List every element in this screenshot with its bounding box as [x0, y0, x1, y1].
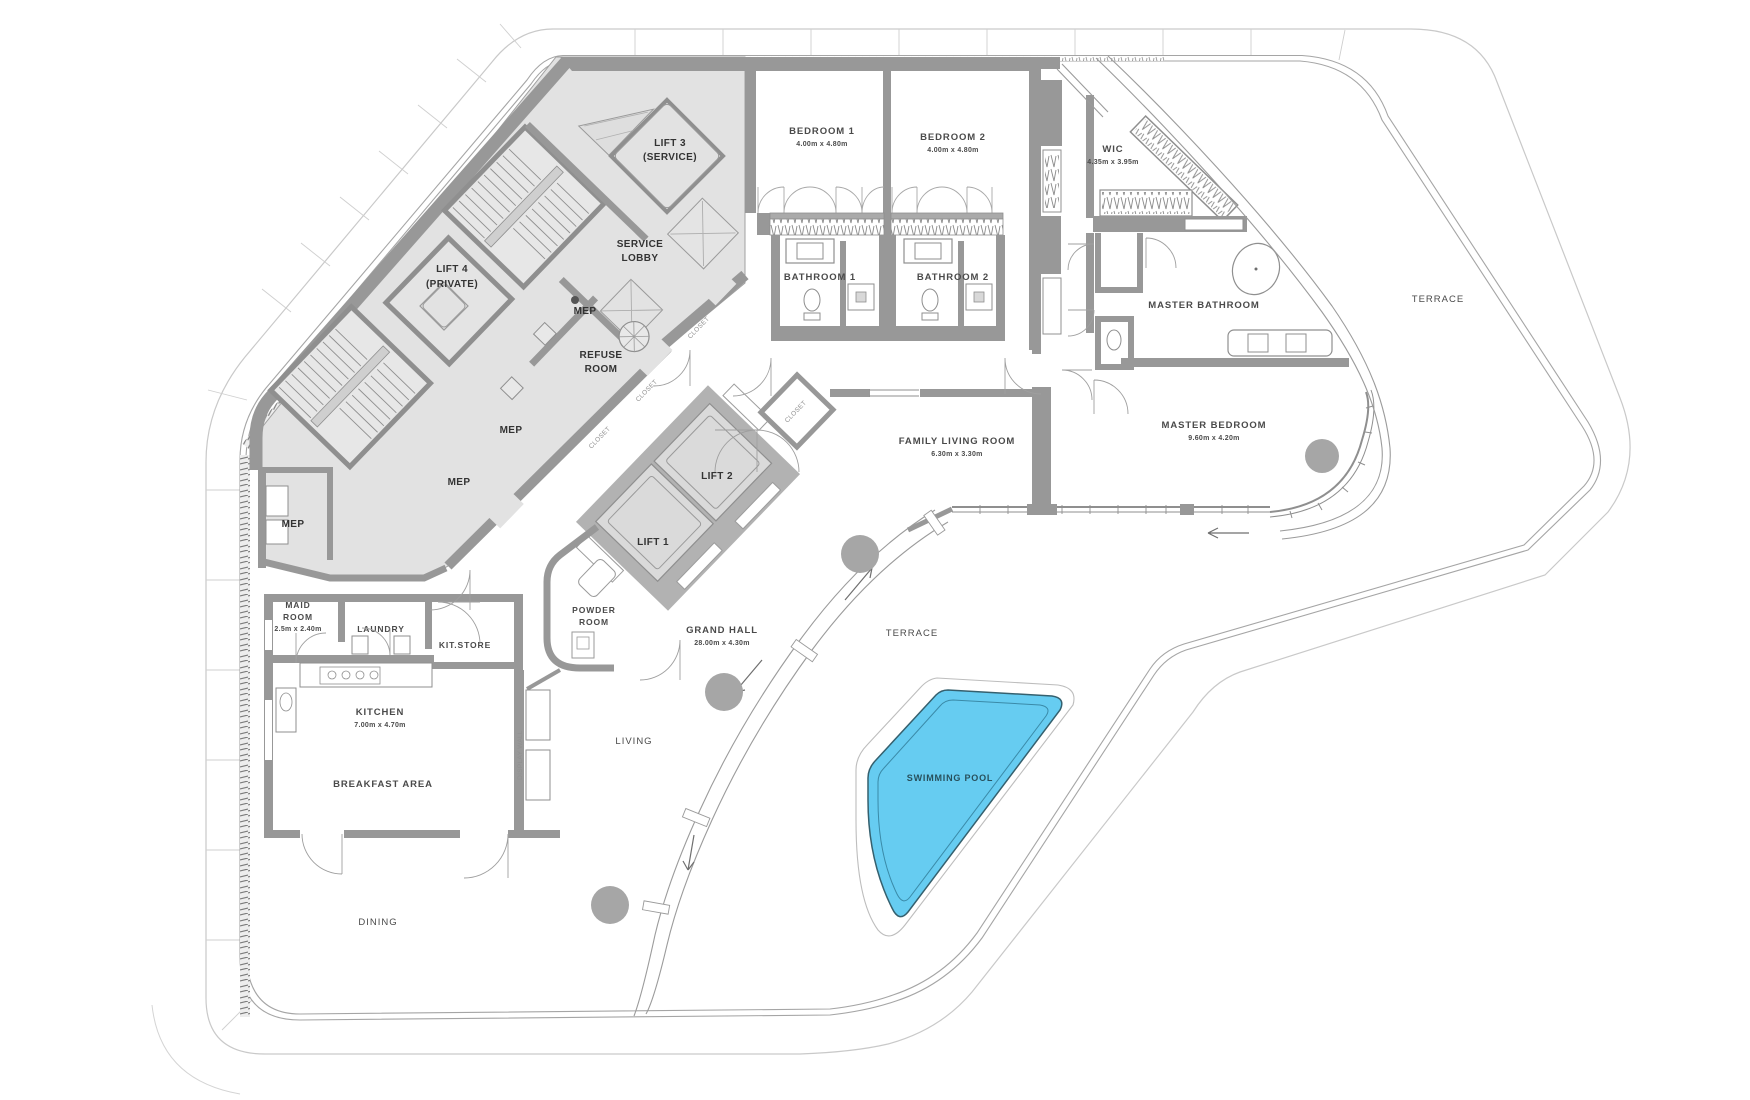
svg-text:ROOM: ROOM — [579, 617, 609, 627]
svg-text:4.00m x 4.80m: 4.00m x 4.80m — [796, 141, 847, 148]
svg-text:MASTER BATHROOM: MASTER BATHROOM — [1148, 300, 1259, 311]
svg-text:4.00m x 4.80m: 4.00m x 4.80m — [927, 147, 978, 154]
svg-text:6.30m x 3.30m: 6.30m x 3.30m — [931, 451, 982, 458]
svg-text:KIT.STORE: KIT.STORE — [439, 640, 491, 650]
svg-text:LIFT 2: LIFT 2 — [701, 471, 733, 482]
svg-text:LIVING: LIVING — [615, 736, 652, 747]
svg-text:WIC: WIC — [1102, 144, 1123, 155]
svg-text:LOBBY: LOBBY — [622, 253, 659, 264]
svg-text:(SERVICE): (SERVICE) — [643, 152, 697, 163]
svg-text:7.00m x 4.70m: 7.00m x 4.70m — [354, 722, 405, 729]
svg-text:LAUNDRY: LAUNDRY — [357, 624, 405, 634]
svg-text:MEP: MEP — [574, 306, 597, 317]
svg-text:SWIMMING POOL: SWIMMING POOL — [907, 773, 993, 783]
svg-text:MASTER BEDROOM: MASTER BEDROOM — [1162, 420, 1267, 431]
svg-text:MEP: MEP — [282, 519, 305, 530]
svg-text:LIFT 4: LIFT 4 — [436, 264, 468, 275]
svg-text:REFUSE: REFUSE — [580, 350, 623, 361]
svg-text:MEP: MEP — [448, 477, 471, 488]
svg-text:BATHROOM 1: BATHROOM 1 — [784, 272, 856, 283]
svg-text:POWDER: POWDER — [572, 605, 616, 615]
svg-text:TERRACE: TERRACE — [1412, 294, 1464, 305]
svg-text:4.35m x 3.95m: 4.35m x 3.95m — [1087, 159, 1138, 166]
svg-text:DISPLAY WALL: DISPLAY WALL — [517, 730, 524, 780]
svg-text:9.60m x 4.20m: 9.60m x 4.20m — [1188, 435, 1239, 442]
svg-text:SERVICE: SERVICE — [617, 239, 664, 250]
svg-text:FAMILY LIVING ROOM: FAMILY LIVING ROOM — [899, 436, 1016, 447]
svg-text:28.00m x 4.30m: 28.00m x 4.30m — [694, 640, 750, 647]
svg-text:BEDROOM 1: BEDROOM 1 — [789, 126, 855, 137]
svg-text:BATHROOM 2: BATHROOM 2 — [917, 272, 989, 283]
svg-text:BREAKFAST AREA: BREAKFAST AREA — [333, 779, 433, 790]
svg-text:BEDROOM 2: BEDROOM 2 — [920, 132, 986, 143]
svg-text:LIFT 3: LIFT 3 — [654, 138, 686, 149]
svg-text:ROOM: ROOM — [283, 612, 313, 622]
svg-text:MAID: MAID — [285, 600, 310, 610]
svg-text:TERRACE: TERRACE — [886, 628, 938, 639]
svg-text:KITCHEN: KITCHEN — [356, 707, 405, 718]
svg-text:2.5m x 2.40m: 2.5m x 2.40m — [274, 626, 321, 633]
svg-text:ROOM: ROOM — [585, 364, 618, 375]
svg-text:GRAND HALL: GRAND HALL — [686, 625, 758, 636]
svg-text:MEP: MEP — [500, 425, 523, 436]
svg-text:(PRIVATE): (PRIVATE) — [426, 279, 478, 290]
svg-text:LIFT 1: LIFT 1 — [637, 537, 669, 548]
svg-text:DINING: DINING — [358, 917, 397, 928]
